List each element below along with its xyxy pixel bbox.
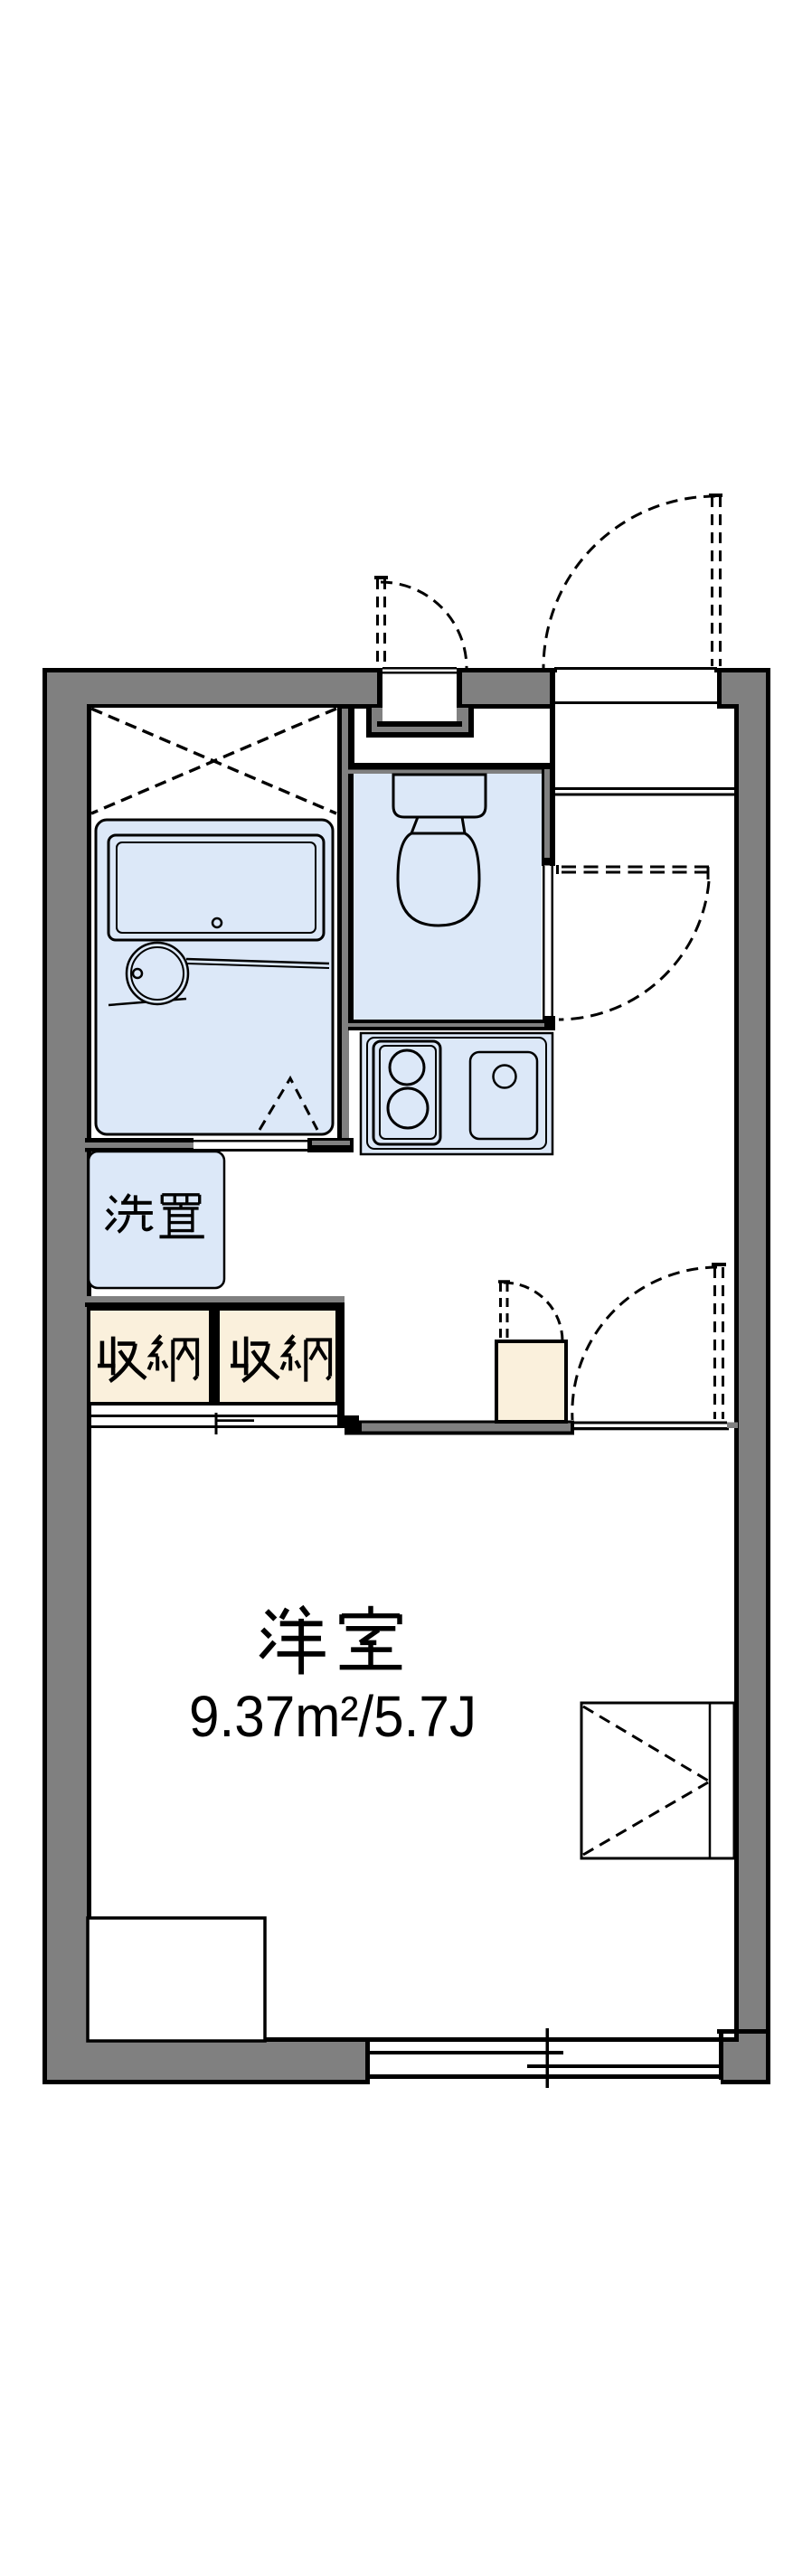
svg-text:9.37m²/5.7J: 9.37m²/5.7J: [189, 1684, 477, 1749]
